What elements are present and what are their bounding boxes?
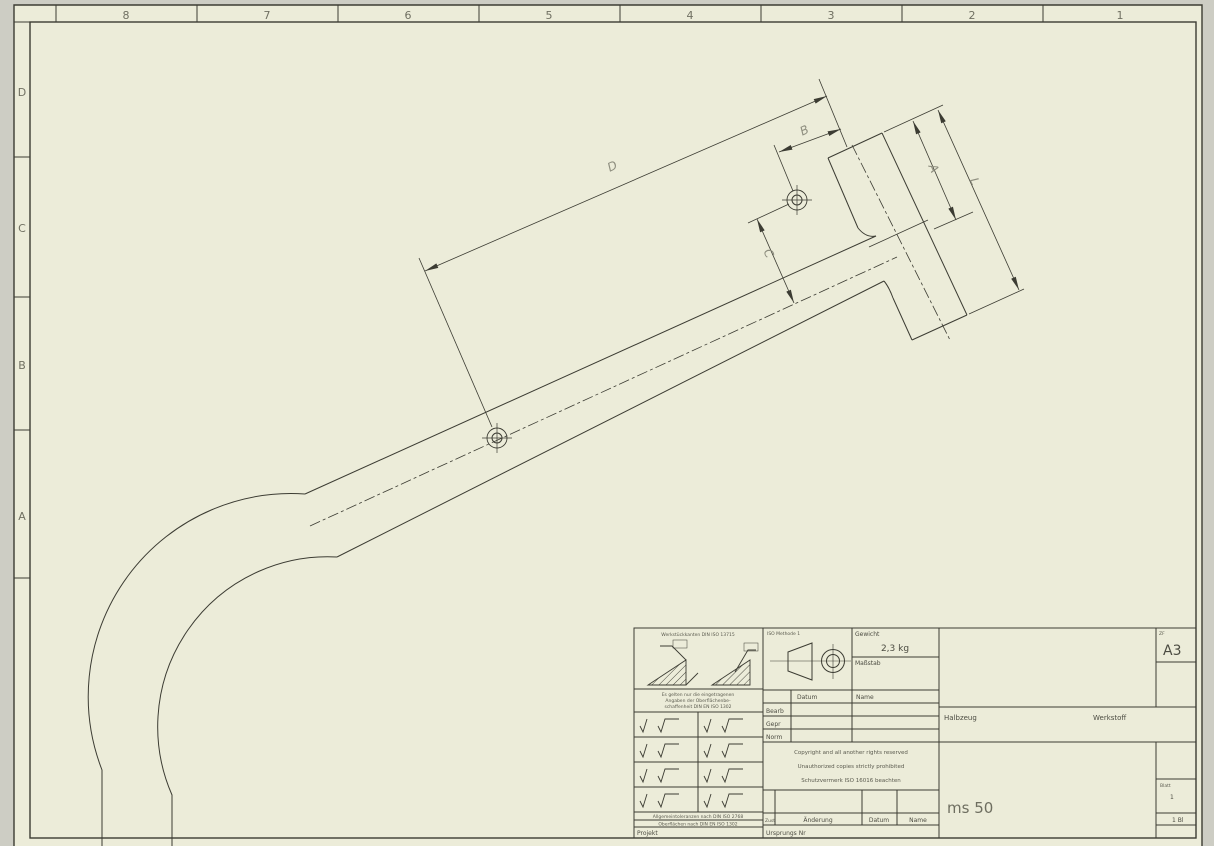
copyright-line-2: Unauthorized copies strictly prohibited [798,764,905,770]
cad-sheet-canvas: 8 7 6 5 4 3 2 1 D C B A [0,0,1214,846]
aenderung-label: Änderung [803,817,832,824]
copyright-line-1: Copyright and all another rights reserve… [794,750,908,756]
zone-number: 5 [546,9,553,22]
datum2-label: Datum [869,817,889,824]
datum-label: Datum [797,694,817,701]
zone-number: 3 [828,9,835,22]
zust-label: Zust [765,818,775,824]
name-label: Name [856,694,874,701]
werkstoff-label: Werkstoff [1093,714,1126,722]
offsheet-right [1202,0,1214,846]
massstab-label: Maßstab [855,660,881,667]
copyright-line-3: Schutzvermerk ISO 16016 beachten [801,778,901,784]
zone-number: 2 [969,9,976,22]
halbzeug-label: Halbzeug [944,714,977,722]
gewicht-value: 2,3 kg [881,644,909,654]
offsheet-left [0,0,14,846]
zone-number: 1 [1117,9,1124,22]
zone-letter: C [18,222,26,235]
paper-sheet [14,5,1202,846]
format-label: ZF [1159,631,1165,637]
gepr-label: Gepr [766,721,781,728]
drawing-sheet-view: { "sheet": { "format_label": "ZF", "form… [0,0,1214,846]
tolerance-note-1: Allgemeintoleranzen nach DIN ISO 2768 [653,814,744,820]
projekt-label: Projekt [637,830,658,837]
zone-number: 4 [687,9,694,22]
blatt-label: Blatt [1160,783,1171,789]
zone-letter: B [18,359,26,372]
surface-note-3: schaffenheit DIN EN ISO 1302 [664,704,731,710]
format-value: A3 [1163,643,1181,659]
blatt-value: 1 [1170,794,1174,801]
surface-note-1: Es gelten nur die eingetragenen [662,692,735,698]
offsheet-top [0,0,1214,5]
ursprung-label: Ursprungs Nr [766,830,806,837]
norm-label: Norm [766,734,783,741]
blatt-count: 1 Bl [1172,817,1184,824]
zone-number: 7 [264,9,271,22]
zone-letter: D [18,86,26,99]
edges-note: Werkstückkanten DIN ISO 13715 [661,632,735,638]
projection-label: ISO Methode 1 [767,631,800,637]
part-name: ms 50 [947,799,993,817]
zone-number: 6 [405,9,412,22]
zone-letter: A [18,510,26,523]
bearb-label: Bearb [766,708,784,715]
name2-label: Name [909,817,927,824]
surface-note-2: Angaben der Oberflächenbe- [665,698,731,704]
zone-number: 8 [123,9,130,22]
gewicht-label: Gewicht [855,631,880,638]
tolerance-note-2: Oberflächen nach DIN EN ISO 1302 [658,822,737,828]
